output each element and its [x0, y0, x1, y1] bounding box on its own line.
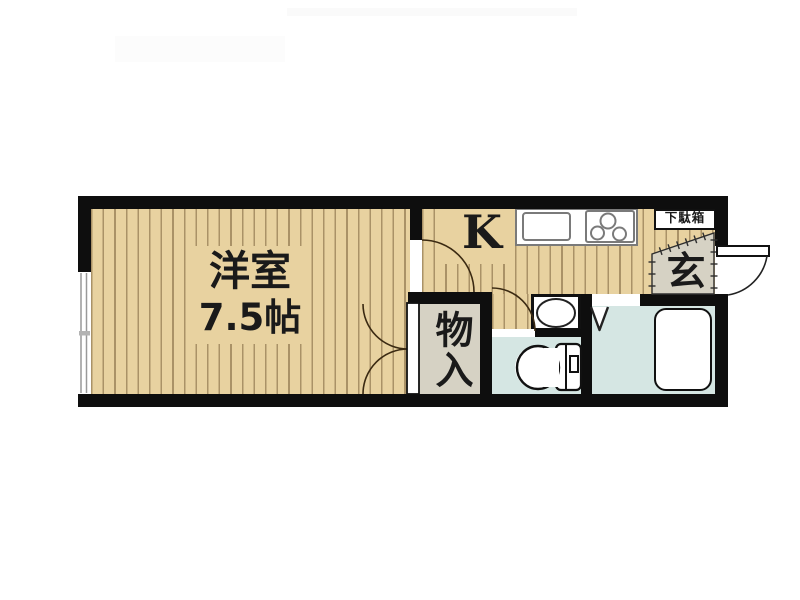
plan-linework — [0, 0, 800, 600]
toilet-icon — [515, 344, 581, 390]
double-closet-door-icon-upper — [363, 304, 408, 349]
living-room-name: 洋室 — [180, 249, 320, 293]
kitchen-label: K — [448, 206, 516, 258]
folding-door-icon — [591, 307, 608, 330]
entrance-door-icon — [717, 246, 769, 256]
shoe-cabinet-label: 下駄箱 — [656, 210, 714, 226]
entrance-label: 玄 — [664, 251, 708, 293]
entrance-door-arc — [728, 256, 767, 295]
stove-burners-icon — [591, 214, 626, 241]
living-room-size: 7.5帖 — [180, 296, 320, 338]
closet-label: 物入 — [428, 308, 474, 392]
window-icon — [79, 273, 90, 393]
wash-basin-icon — [537, 299, 575, 327]
hinged-door-icon-toilet — [492, 288, 535, 331]
floor-plan: 洋室 7.5帖 K 物入 玄 下駄箱 — [0, 0, 800, 600]
closet-door-leaf — [407, 303, 419, 394]
double-closet-door-icon-lower — [363, 349, 408, 394]
